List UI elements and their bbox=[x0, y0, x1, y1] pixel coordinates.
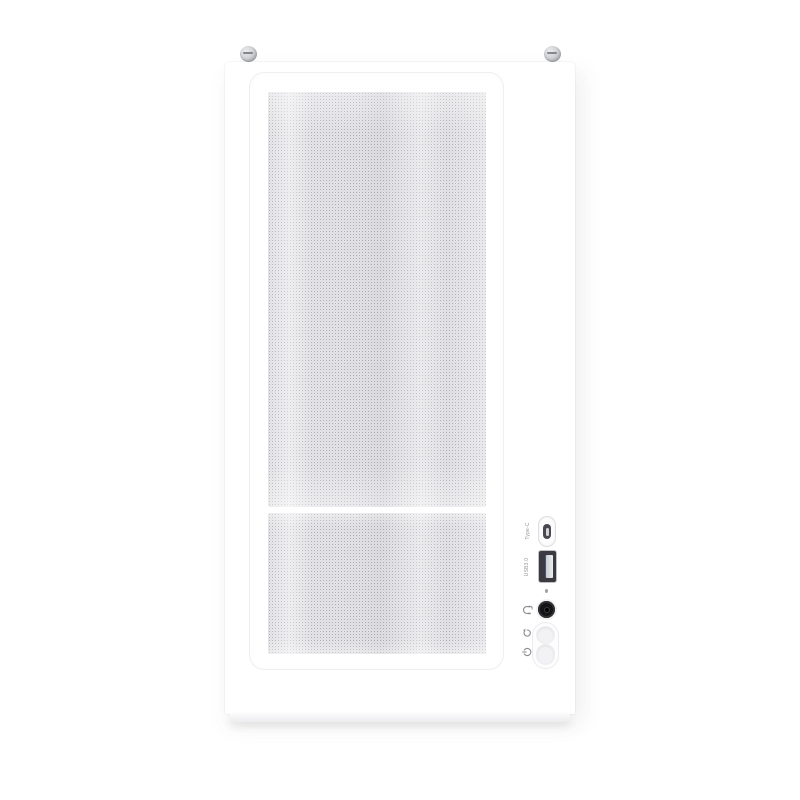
reset-icon bbox=[522, 628, 533, 639]
power-led bbox=[545, 589, 548, 593]
audio-jack bbox=[538, 601, 555, 618]
thumbscrew-right bbox=[544, 46, 561, 62]
product-photo: Type-C USB3.0 bbox=[0, 0, 800, 800]
usb-port-label: USB3.0 bbox=[524, 558, 530, 576]
power-button bbox=[537, 645, 554, 664]
headset-icon bbox=[522, 605, 533, 616]
usb-typec-port bbox=[539, 517, 555, 546]
case-base-lip bbox=[230, 714, 570, 722]
mesh-panel-top bbox=[268, 92, 486, 507]
usb3-port bbox=[539, 551, 556, 582]
mesh-panel-bottom bbox=[268, 513, 486, 654]
typec-port-label: Type-C bbox=[525, 522, 531, 539]
typec-slot bbox=[543, 524, 551, 539]
reset-button bbox=[537, 627, 554, 643]
usb-connector-tab bbox=[546, 555, 553, 578]
power-icon bbox=[522, 647, 533, 658]
thumbscrew-left bbox=[240, 46, 257, 62]
